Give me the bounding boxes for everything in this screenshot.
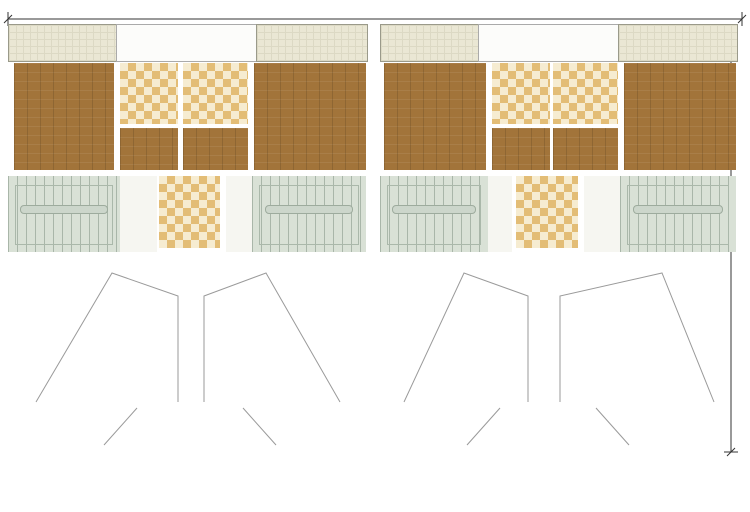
hall-2	[226, 176, 252, 252]
equipment-platform-2	[478, 24, 620, 62]
porch-roof-2	[466, 380, 630, 446]
stair-3	[380, 176, 488, 252]
closet-4	[553, 128, 618, 170]
porch-roof-1	[103, 380, 277, 446]
closet-2	[183, 128, 248, 170]
bedroom-2	[254, 63, 366, 170]
bath-3	[492, 63, 550, 124]
hall-3	[488, 176, 512, 252]
storage-2	[516, 176, 578, 248]
bath-1	[120, 63, 178, 124]
bedroom-4	[624, 63, 736, 170]
stair-4	[620, 176, 736, 252]
stair-1	[8, 176, 120, 252]
stair-2	[252, 176, 366, 252]
equipment-platform-1	[116, 24, 258, 62]
balcony-3	[380, 24, 480, 62]
storage-1	[159, 176, 220, 248]
bedroom-3	[384, 63, 486, 170]
hall-4	[584, 176, 620, 252]
bath-2	[183, 63, 248, 124]
bath-4	[553, 63, 618, 124]
balcony-2	[256, 24, 368, 62]
bedroom-1	[14, 63, 114, 170]
hall-1	[120, 176, 157, 252]
floor-plan-page: 24000 13320 柏竣建房www.baijunjf.com 柏竣建房www…	[0, 0, 750, 512]
closet-1	[120, 128, 178, 170]
balcony-1	[8, 24, 118, 62]
closet-3	[492, 128, 550, 170]
balcony-4	[618, 24, 738, 62]
